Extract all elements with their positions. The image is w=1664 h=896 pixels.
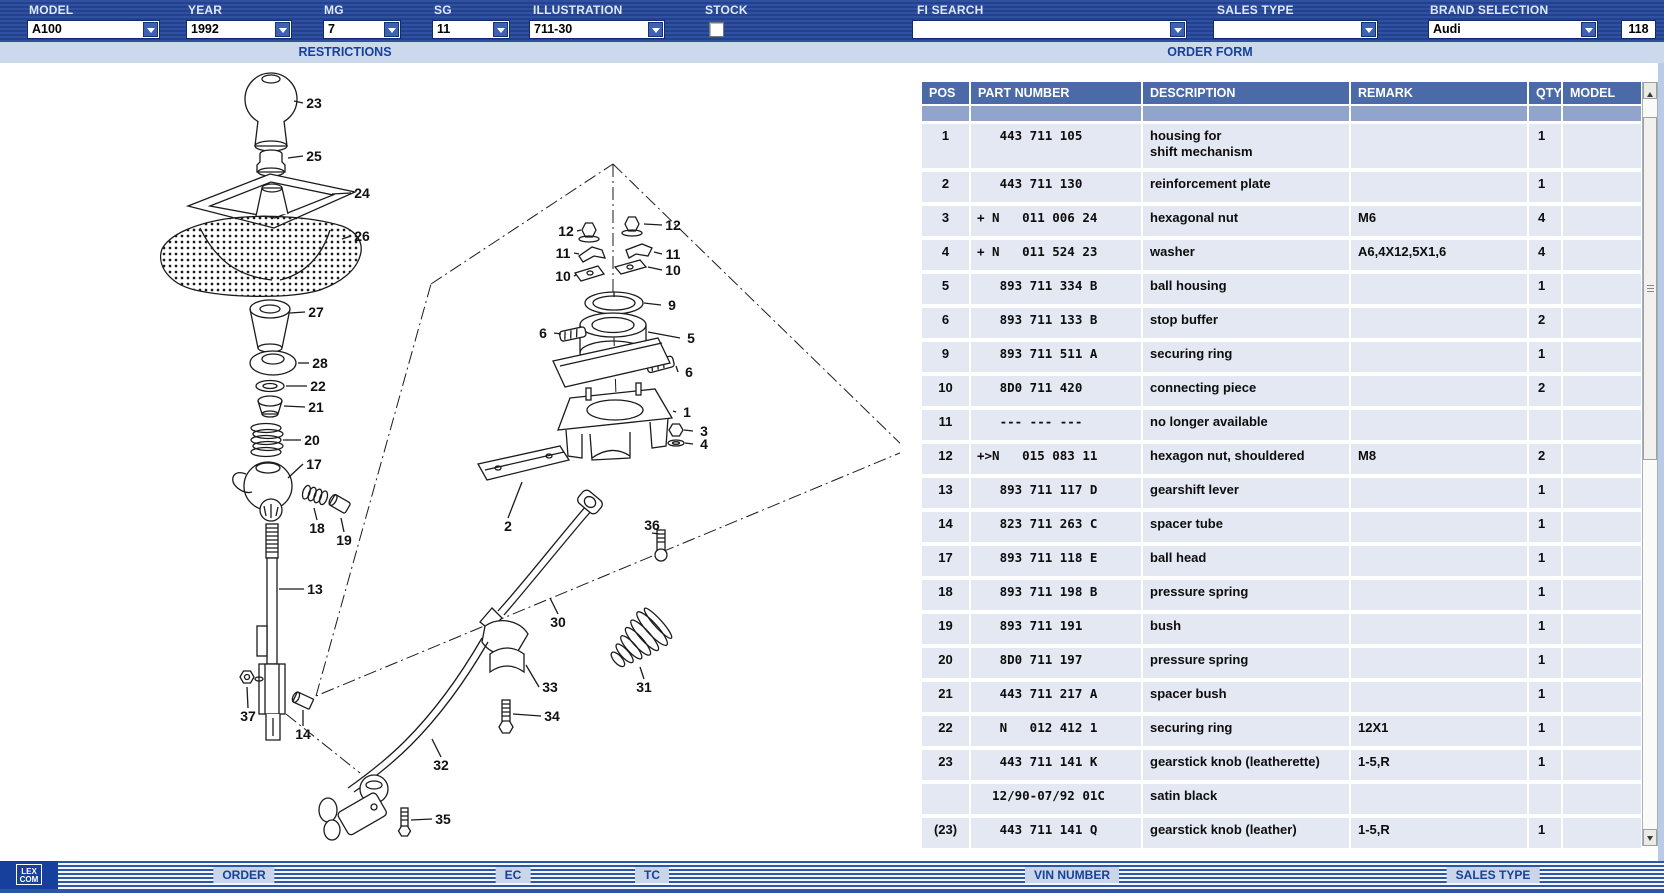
callout-14[interactable]: 14 [295,726,311,742]
cell-pos: 3 [922,206,969,236]
filter-cell [1143,106,1349,121]
cell-part: 893 711 118 E [971,546,1141,576]
scrollbar-thumb[interactable] [1643,117,1657,460]
cell-qty [1529,784,1561,814]
cell-desc: spacer tube [1143,512,1349,542]
cell-qty [1529,410,1561,440]
cell-part: + N 011 006 24 [971,206,1141,236]
column-header: REMARK [1351,82,1527,104]
cell-desc: pressure spring [1143,648,1349,678]
cell-pos: 9 [922,342,969,372]
cell-model [1563,580,1641,610]
cell-qty: 2 [1529,376,1561,406]
chevron-down-icon[interactable] [1581,22,1596,37]
callout-12[interactable]: 12 [665,217,681,233]
cell-remark [1351,342,1527,372]
cell-desc: reinforcement plate [1143,172,1349,202]
cell-pos: 10 [922,376,969,406]
cell-desc: ball housing [1143,274,1349,304]
cell-qty: 1 [1529,750,1561,780]
cell-model [1563,648,1641,678]
callout-37[interactable]: 37 [240,708,256,724]
cell-part: 443 711 141 K [971,750,1141,780]
brand-select[interactable]: Audi [1428,20,1598,39]
sg-select[interactable]: 11 [432,20,510,39]
cell-qty: 1 [1529,648,1561,678]
cell-pos: 12 [922,444,969,474]
cell-remark [1351,682,1527,712]
table-row[interactable]: 18 893 711 198 Bpressure spring1 [922,580,1641,610]
cell-part: 8D0 711 420 [971,376,1141,406]
sg-label: SG [434,3,452,17]
cell-remark [1351,274,1527,304]
year-label: YEAR [188,3,222,17]
cell-qty: 2 [1529,308,1561,338]
column-header: QTY [1529,82,1561,104]
cell-qty: 1 [1529,274,1561,304]
cell-part: 443 711 105 [971,124,1141,168]
cell-remark [1351,410,1527,440]
parts-diagram: 2325242627282221201718191337141212111110… [30,66,900,856]
cell-part: 443 711 217 A [971,682,1141,712]
cell-model [1563,546,1641,576]
cell-remark [1351,478,1527,508]
cell-pos: 13 [922,478,969,508]
callout-10[interactable]: 10 [555,268,571,284]
cell-part: N 012 412 1 [971,716,1141,746]
cell-remark: M6 [1351,206,1527,236]
cell-part: 893 711 334 B [971,274,1141,304]
cell-pos [922,784,969,814]
table-row[interactable]: 6 893 711 133 Bstop buffer2 [922,308,1641,338]
table-filter-row [922,106,1641,121]
restrictions-button[interactable]: RESTRICTIONS [280,45,410,59]
scroll-down-button[interactable] [1643,829,1657,846]
table-row[interactable]: 13 893 711 117 Dgearshift lever1 [922,478,1641,508]
cell-desc: spacer bush [1143,682,1349,712]
brand-code-field: 118 [1621,20,1656,39]
tc-button[interactable]: TC [635,867,669,883]
callout-34[interactable]: 34 [544,708,560,724]
cell-qty: 1 [1529,478,1561,508]
arrow-up-icon [1647,89,1653,97]
chevron-down-icon[interactable] [1170,22,1185,37]
cell-remark [1351,376,1527,406]
gearstick-knob-group [161,73,362,740]
callout-28[interactable]: 28 [312,355,328,371]
column-header: POS [922,82,969,104]
table-row[interactable]: 5 893 711 334 Bball housing1 [922,274,1641,304]
column-header: MODEL [1563,82,1641,104]
mg-select[interactable]: 7 [323,20,401,39]
cell-part: 893 711 117 D [971,478,1141,508]
filter-cell [1351,106,1527,121]
illustration-value: 711-30 [534,22,572,36]
callout-24[interactable]: 24 [354,185,370,201]
cell-desc: satin black [1143,784,1349,814]
cell-remark [1351,512,1527,542]
table-row[interactable]: 9 893 711 511 Asecuring ring1 [922,342,1641,372]
callout-23[interactable]: 23 [306,95,322,111]
sales-type-label: SALES TYPE [1217,3,1294,17]
table-header: POSPART NUMBERDESCRIPTIONREMARKQTYMODEL [922,82,1641,104]
callout-33[interactable]: 33 [542,679,558,695]
parts-catalog-window: MODEL A100 YEAR 1992 MG 7 SG 11 ILLUSTRA… [0,0,1664,896]
cell-model [1563,206,1641,236]
cell-remark: M8 [1351,444,1527,474]
cell-qty: 1 [1529,546,1561,576]
cell-model [1563,410,1641,440]
filter-cell [1529,106,1561,121]
cell-qty: 1 [1529,580,1561,610]
cell-remark [1351,784,1527,814]
cell-remark [1351,308,1527,338]
cell-pos: 5 [922,274,969,304]
cell-pos: 14 [922,512,969,542]
table-body: 1 443 711 105housing for shift mechanism… [922,124,1641,848]
cell-qty: 1 [1529,172,1561,202]
chevron-down-icon[interactable] [648,22,663,37]
cell-part: 12/90-07/92 01C [971,784,1141,814]
vertical-scrollbar[interactable] [1642,82,1658,846]
callout-25[interactable]: 25 [306,148,322,164]
year-select[interactable]: 1992 [186,20,292,39]
content-area: 2325242627282221201718191337141212111110… [0,63,1664,861]
cell-qty: 1 [1529,682,1561,712]
cell-model [1563,240,1641,270]
cell-pos: 23 [922,750,969,780]
cell-desc: stop buffer [1143,308,1349,338]
cell-desc: gearstick knob (leather) [1143,818,1349,848]
chevron-down-icon[interactable] [1361,22,1376,37]
cell-remark [1351,172,1527,202]
rod-boot [600,604,676,678]
cell-qty: 1 [1529,716,1561,746]
callout-13[interactable]: 13 [307,581,323,597]
table-row[interactable]: 12/90-07/92 01Csatin black [922,784,1641,814]
order-button[interactable]: ORDER [213,867,274,883]
cell-desc: securing ring [1143,342,1349,372]
cell-part: 893 711 198 B [971,580,1141,610]
table-row[interactable]: 14 823 711 263 Cspacer tube1 [922,512,1641,542]
chevron-down-icon[interactable] [143,22,158,37]
cell-model [1563,818,1641,848]
cell-part: 893 711 191 [971,614,1141,644]
cell-qty: 1 [1529,614,1561,644]
stock-label: STOCK [705,3,748,17]
cell-remark [1351,124,1527,168]
table-row[interactable]: 20 8D0 711 197pressure spring1 [922,648,1641,678]
cell-model [1563,308,1641,338]
cell-desc: hexagonal nut [1143,206,1349,236]
cell-model [1563,478,1641,508]
callout-32[interactable]: 32 [433,757,449,773]
chevron-down-icon[interactable] [384,22,399,37]
sg-value: 11 [437,22,450,36]
cell-model [1563,614,1641,644]
cell-pos: 1 [922,124,969,168]
lexcom-logo: LEX COM [0,861,58,889]
column-header: DESCRIPTION [1143,82,1349,104]
cell-model [1563,124,1641,168]
cell-part: + N 011 524 23 [971,240,1141,270]
callout-30[interactable]: 30 [550,614,566,630]
callout-26[interactable]: 26 [354,228,370,244]
table-row[interactable]: 4+ N 011 524 23washerA6,4X12,5X1,64 [922,240,1641,270]
table-row[interactable]: 3+ N 011 006 24hexagonal nutM64 [922,206,1641,236]
cell-desc: gearstick knob (leatherette) [1143,750,1349,780]
cell-remark: A6,4X12,5X1,6 [1351,240,1527,270]
cell-part: --- --- --- [971,410,1141,440]
statusbar: LEX COM ORDER EC TC VIN NUMBER SALES TYP… [0,861,1664,889]
toolbar: MODEL A100 YEAR 1992 MG 7 SG 11 ILLUSTRA… [0,0,1664,43]
cell-part: +>N 015 083 11 [971,444,1141,474]
cell-part: 8D0 711 197 [971,648,1141,678]
cell-pos: 17 [922,546,969,576]
callout-2[interactable]: 2 [504,518,512,534]
illustration-select[interactable]: 711-30 [529,20,665,39]
cell-pos: (23) [922,818,969,848]
cell-model [1563,444,1641,474]
cell-desc: securing ring [1143,716,1349,746]
cell-pos: 6 [922,308,969,338]
cell-pos: 22 [922,716,969,746]
table-row[interactable]: 23 443 711 141 Kgearstick knob (leathere… [922,750,1641,780]
callout-4[interactable]: 4 [700,436,708,452]
cell-pos: 20 [922,648,969,678]
cell-model [1563,172,1641,202]
cell-part: 893 711 511 A [971,342,1141,372]
table-row[interactable]: 2 443 711 130reinforcement plate1 [922,172,1641,202]
table-row[interactable]: 12+>N 015 083 11hexagon nut, shoulderedM… [922,444,1641,474]
cell-model [1563,376,1641,406]
cell-pos: 19 [922,614,969,644]
vin-number-button[interactable]: VIN NUMBER [1025,867,1119,883]
callout-20[interactable]: 20 [304,432,320,448]
table-row[interactable]: 21 443 711 217 Aspacer bush1 [922,682,1641,712]
cell-desc: pressure spring [1143,580,1349,610]
callout-31[interactable]: 31 [636,679,652,695]
table-row[interactable]: 19 893 711 191bush1 [922,614,1641,644]
cell-desc: no longer available [1143,410,1349,440]
filter-cell [1563,106,1641,121]
chevron-down-icon[interactable] [275,22,290,37]
right-margin [1658,63,1664,861]
illustration-label: ILLUSTRATION [533,3,623,17]
callout-36[interactable]: 36 [644,517,660,533]
table-row[interactable]: 22 N 012 412 1securing ring12X11 [922,716,1641,746]
year-value: 1992 [191,22,219,36]
cell-part: 893 711 133 B [971,308,1141,338]
cell-part: 443 711 141 Q [971,818,1141,848]
cell-remark [1351,614,1527,644]
model-value: A100 [32,22,62,36]
cell-qty: 1 [1529,124,1561,168]
cell-model [1563,784,1641,814]
model-label: MODEL [29,3,73,17]
cell-remark [1351,546,1527,576]
cell-desc: washer [1143,240,1349,270]
cell-qty: 1 [1529,512,1561,542]
callout-5[interactable]: 5 [687,330,695,346]
cell-desc: hexagon nut, shouldered [1143,444,1349,474]
cell-model [1563,512,1641,542]
table-row[interactable]: 1 443 711 105housing for shift mechanism… [922,124,1641,168]
cell-desc: gearshift lever [1143,478,1349,508]
arrow-down-icon [1647,836,1653,844]
cell-qty: 1 [1529,342,1561,372]
order-form-button[interactable]: ORDER FORM [1145,45,1275,59]
cell-pos: 18 [922,580,969,610]
callout-12[interactable]: 12 [558,223,574,239]
callout-19[interactable]: 19 [336,532,352,548]
model-select[interactable]: A100 [27,20,160,39]
parts-table: POSPART NUMBERDESCRIPTIONREMARKQTYMODEL … [922,82,1641,852]
table-row[interactable]: (23) 443 711 141 Qgearstick knob (leathe… [922,818,1641,848]
stock-checkbox[interactable] [709,22,724,37]
callout-27[interactable]: 27 [308,304,324,320]
cell-qty: 2 [1529,444,1561,474]
cell-pos: 21 [922,682,969,712]
cell-qty: 4 [1529,206,1561,236]
callout-17[interactable]: 17 [306,456,322,472]
cell-model [1563,716,1641,746]
cell-model [1563,274,1641,304]
sales-type-button[interactable]: SALES TYPE [1447,867,1540,883]
column-header: PART NUMBER [971,82,1141,104]
callout-21[interactable]: 21 [308,399,324,415]
bottom-divider [0,889,1664,893]
cell-pos: 2 [922,172,969,202]
fi-search-input[interactable] [912,20,1187,39]
callout-11[interactable]: 11 [556,245,571,261]
callout-6[interactable]: 6 [539,325,547,341]
callout-10[interactable]: 10 [665,262,681,278]
cell-remark: 1-5,R [1351,750,1527,780]
scroll-up-button[interactable] [1643,82,1657,99]
cell-desc: bush [1143,614,1349,644]
cell-desc: connecting piece [1143,376,1349,406]
shift-rod-group [319,488,676,840]
cell-qty: 1 [1529,818,1561,848]
callout-1[interactable]: 1 [683,404,691,420]
table-row[interactable]: 10 8D0 711 420connecting piece2 [922,376,1641,406]
cell-model [1563,750,1641,780]
subbar: RESTRICTIONS ORDER FORM [0,42,1664,63]
brand-value: Audi [1433,22,1461,36]
callout-35[interactable]: 35 [435,811,451,827]
callout-6[interactable]: 6 [685,364,693,380]
callout-18[interactable]: 18 [309,520,325,536]
filter-cell [971,106,1141,121]
cell-model [1563,342,1641,372]
cell-qty: 4 [1529,240,1561,270]
cell-part: 823 711 263 C [971,512,1141,542]
table-row[interactable]: 17 893 711 118 Eball head1 [922,546,1641,576]
cell-remark [1351,580,1527,610]
fi-search-label: FI SEARCH [917,3,983,17]
cell-desc: ball head [1143,546,1349,576]
ec-button[interactable]: EC [496,867,531,883]
sales-type-select[interactable] [1213,20,1378,39]
callout-22[interactable]: 22 [310,378,326,394]
cell-remark [1351,648,1527,678]
cell-pos: 4 [922,240,969,270]
callout-11[interactable]: 11 [666,246,681,262]
cell-model [1563,682,1641,712]
logo-text: COM [20,875,39,884]
chevron-down-icon[interactable] [493,22,508,37]
mg-value: 7 [328,22,335,36]
cell-remark: 1-5,R [1351,818,1527,848]
cell-desc: housing for shift mechanism [1143,124,1349,168]
mg-label: MG [324,3,344,17]
brand-selection-label: BRAND SELECTION [1430,3,1548,17]
cell-part: 443 711 130 [971,172,1141,202]
grip-icon [1647,285,1654,293]
cell-remark: 12X1 [1351,716,1527,746]
filter-cell [922,106,969,121]
callout-9[interactable]: 9 [668,297,676,313]
cell-pos: 11 [922,410,969,440]
table-row[interactable]: 11 --- --- ---no longer available [922,410,1641,440]
